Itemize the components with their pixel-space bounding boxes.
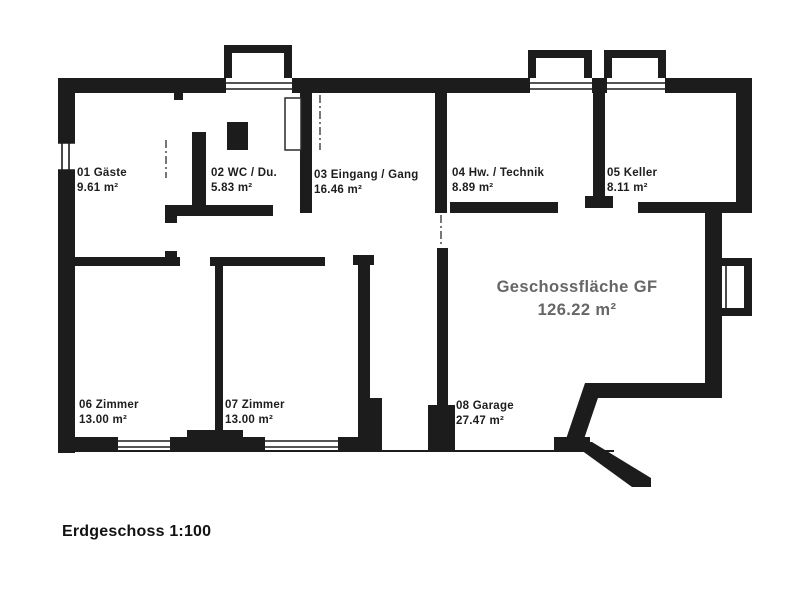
room-area: 16.46 m² [314, 183, 419, 198]
room-area: 9.61 m² [77, 181, 127, 196]
total-area-value: 126.22 m² [458, 299, 696, 322]
room-area: 5.83 m² [211, 181, 277, 196]
plan-scale-title: Erdgeschoss 1:100 [62, 523, 211, 541]
room-name: 04 Hw. / Technik [452, 166, 544, 181]
wall-left-lower [58, 170, 75, 453]
room-label-04-hw-technik: 04 Hw. / Technik 8.89 m² [452, 166, 544, 196]
walls [58, 45, 752, 487]
room-label-08-garage: 08 Garage 27.47 m² [456, 399, 514, 429]
room-label-03-eingang-gang: 03 Eingang / Gang 16.46 m² [314, 168, 419, 198]
wall-top-2 [292, 78, 530, 93]
room-area: 13.00 m² [79, 413, 139, 428]
room-name: 06 Zimmer [79, 398, 139, 413]
wall-right-upper [736, 78, 752, 213]
room-area: 8.89 m² [452, 181, 544, 196]
room-label-06-zimmer: 06 Zimmer 13.00 m² [79, 398, 139, 428]
room-name: 05 Keller [607, 166, 657, 181]
total-area-label: Geschossfläche GF 126.22 m² [458, 276, 696, 322]
room-area: 13.00 m² [225, 413, 285, 428]
floorplan-page: 01 Gäste 9.61 m² 02 WC / Du. 5.83 m² 03 … [0, 0, 800, 597]
wall-top-1 [58, 78, 226, 93]
room-name: 02 WC / Du. [211, 166, 277, 181]
wall-top-3 [592, 78, 607, 93]
room-label-01-gaeste: 01 Gäste 9.61 m² [77, 166, 127, 196]
bathroom-fixture [227, 122, 248, 150]
door-leaf [285, 98, 301, 150]
room-label-07-zimmer: 07 Zimmer 13.00 m² [225, 398, 285, 428]
wall-right-lower [705, 202, 722, 398]
room-name: 07 Zimmer [225, 398, 285, 413]
total-area-title: Geschossfläche GF [458, 276, 696, 299]
room-label-05-keller: 05 Keller 8.11 m² [607, 166, 657, 196]
room-name: 03 Eingang / Gang [314, 168, 419, 183]
room-area: 8.11 m² [607, 181, 657, 196]
room-area: 27.47 m² [456, 414, 514, 429]
room-name: 01 Gäste [77, 166, 127, 181]
room-label-02-wc-du: 02 WC / Du. 5.83 m² [211, 166, 277, 196]
room-name: 08 Garage [456, 399, 514, 414]
wall-left-upper [58, 78, 75, 143]
